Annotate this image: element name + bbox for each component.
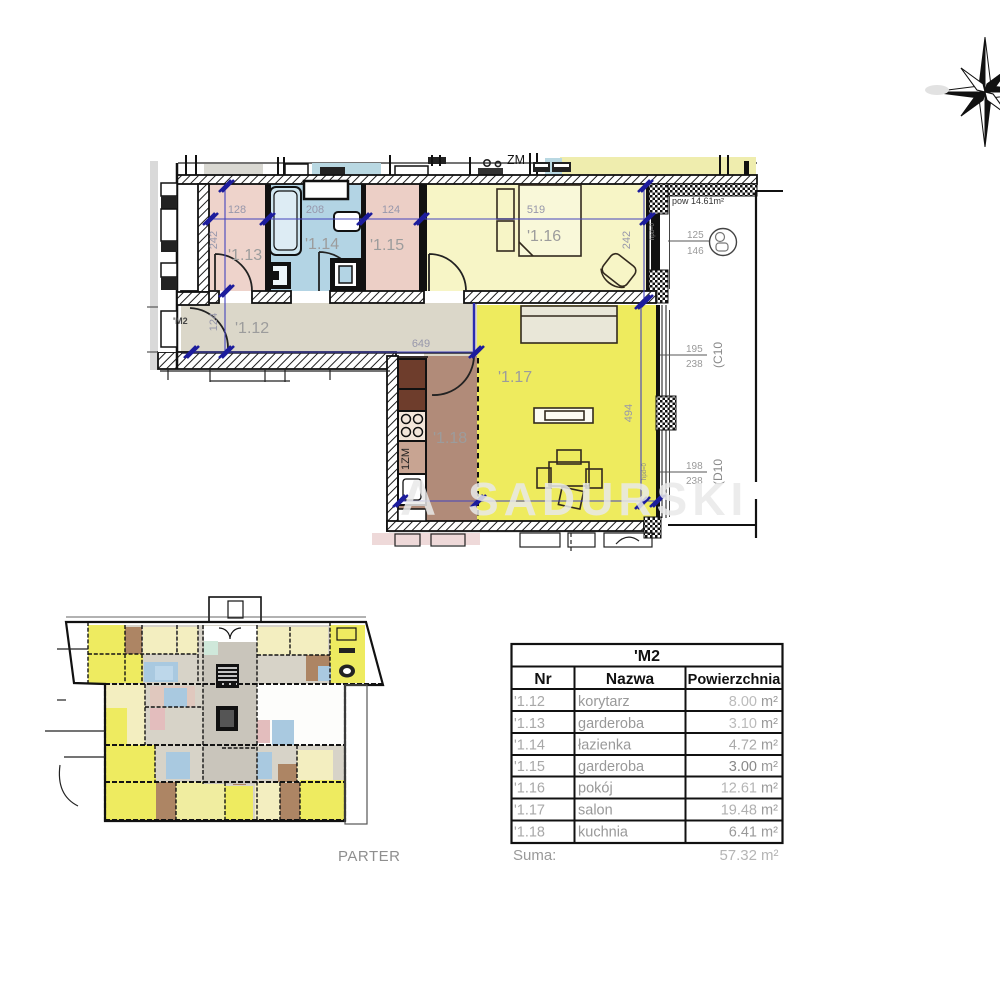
svg-text:garderoba: garderoba xyxy=(578,716,645,732)
svg-text:'1.14: '1.14 xyxy=(305,236,339,253)
svg-text:242: 242 xyxy=(621,231,633,249)
svg-text:'1.14: '1.14 xyxy=(514,738,545,754)
svg-text:Powierzchnia: Powierzchnia xyxy=(688,672,782,688)
svg-text:m²: m² xyxy=(761,847,779,864)
svg-text:649: 649 xyxy=(412,338,430,350)
svg-text:1ZM: 1ZM xyxy=(400,448,412,470)
svg-text:19.48: 19.48 xyxy=(721,803,757,819)
svg-text:ZM: ZM xyxy=(507,153,525,167)
svg-text:hpd=0: hpd=0 xyxy=(650,222,656,240)
svg-text:SADURSKI: SADURSKI xyxy=(468,473,748,525)
svg-text:PARTER: PARTER xyxy=(338,848,400,865)
svg-text:pokój: pokój xyxy=(578,781,613,797)
svg-text:łazienka: łazienka xyxy=(578,738,632,754)
svg-text:3.00: 3.00 xyxy=(729,759,757,775)
svg-text:124: 124 xyxy=(382,204,400,216)
svg-text:'1.12: '1.12 xyxy=(235,320,269,337)
svg-text:pow 14.61m²: pow 14.61m² xyxy=(672,196,724,206)
svg-text:125: 125 xyxy=(687,230,704,241)
svg-text:'1.18: '1.18 xyxy=(514,825,545,841)
svg-text:57.32: 57.32 xyxy=(719,847,757,864)
svg-text:garderoba: garderoba xyxy=(578,759,645,775)
svg-text:146: 146 xyxy=(687,246,704,257)
svg-text:'1.13: '1.13 xyxy=(228,247,262,264)
svg-text:242: 242 xyxy=(208,231,220,249)
svg-text:salon: salon xyxy=(578,803,613,819)
svg-text:m²: m² xyxy=(761,825,778,841)
svg-text:'1.18: '1.18 xyxy=(433,430,467,447)
svg-text:m²: m² xyxy=(761,738,778,754)
svg-text:12.61: 12.61 xyxy=(721,781,757,797)
svg-text:Nazwa: Nazwa xyxy=(606,671,655,688)
svg-text:m²: m² xyxy=(761,803,778,819)
svg-text:195: 195 xyxy=(686,344,703,355)
svg-text:Nr: Nr xyxy=(534,671,551,688)
svg-text:'1.16: '1.16 xyxy=(527,228,561,245)
svg-text:m²: m² xyxy=(761,716,778,732)
svg-text:6.41: 6.41 xyxy=(729,825,757,841)
svg-text:8.00: 8.00 xyxy=(729,694,757,710)
svg-text:m²: m² xyxy=(761,781,778,797)
svg-text:'1.12: '1.12 xyxy=(514,694,545,710)
svg-text:korytarz: korytarz xyxy=(578,694,630,710)
svg-text:'M2: 'M2 xyxy=(173,316,188,326)
svg-text:124: 124 xyxy=(208,313,220,331)
svg-text:'1.15: '1.15 xyxy=(370,237,404,254)
svg-text:208: 208 xyxy=(306,204,324,216)
svg-text:238: 238 xyxy=(686,359,703,370)
svg-text:kuchnia: kuchnia xyxy=(578,825,629,841)
svg-text:4.72: 4.72 xyxy=(729,738,757,754)
svg-text:128: 128 xyxy=(228,204,246,216)
svg-text:'1.13: '1.13 xyxy=(514,716,545,732)
svg-text:Suma:: Suma: xyxy=(513,847,556,864)
svg-text:'1.17: '1.17 xyxy=(514,803,545,819)
svg-text:m²: m² xyxy=(761,759,778,775)
svg-text:494: 494 xyxy=(623,404,635,422)
svg-text:'1.16: '1.16 xyxy=(514,781,545,797)
svg-text:519: 519 xyxy=(527,204,545,216)
svg-text:198: 198 xyxy=(686,461,703,472)
svg-text:(C10: (C10 xyxy=(711,342,725,368)
svg-text:3.10: 3.10 xyxy=(729,716,757,732)
svg-text:'1.15: '1.15 xyxy=(514,759,545,775)
svg-text:'M2: 'M2 xyxy=(634,648,660,665)
svg-text:m²: m² xyxy=(761,694,778,710)
svg-text:A: A xyxy=(400,470,436,526)
svg-text:'1.17: '1.17 xyxy=(498,369,532,386)
